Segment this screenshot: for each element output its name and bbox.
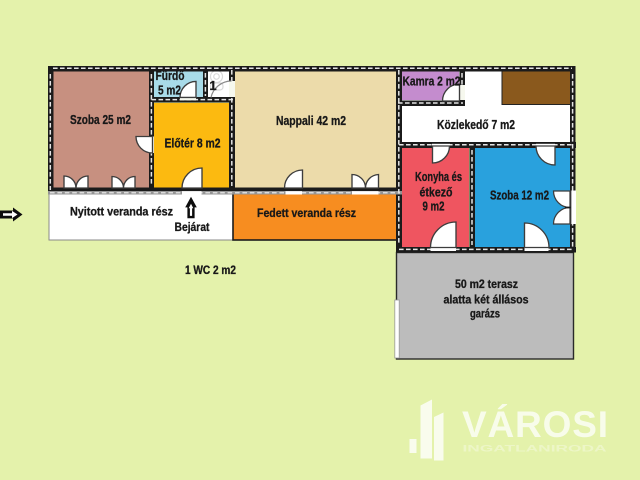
svg-text:9 m2: 9 m2 bbox=[423, 199, 445, 214]
svg-text:Kamra 2 m2: Kamra 2 m2 bbox=[403, 74, 461, 89]
svg-text:Szoba 25 m2: Szoba 25 m2 bbox=[70, 112, 131, 127]
svg-text:Bejárat: Bejárat bbox=[175, 222, 210, 234]
svg-text:50 m2 terasz: 50 m2 terasz bbox=[455, 279, 518, 291]
svg-text:Közlekedő 7 m2: Közlekedő 7 m2 bbox=[437, 117, 515, 132]
svg-text:VÁROSI: VÁROSI bbox=[462, 404, 608, 445]
svg-text:INGATLANIRODA: INGATLANIRODA bbox=[463, 444, 608, 454]
svg-text:Nappali 42 m2: Nappali 42 m2 bbox=[276, 113, 346, 128]
svg-text:Szoba 12 m2: Szoba 12 m2 bbox=[490, 188, 549, 203]
svg-text:alatta két állásos: alatta két állásos bbox=[444, 295, 529, 307]
svg-text:garázs: garázs bbox=[470, 309, 500, 321]
svg-text:Konyha és: Konyha és bbox=[415, 169, 462, 184]
svg-text:Fürdő: Fürdő bbox=[156, 68, 185, 83]
svg-text:5 m2: 5 m2 bbox=[158, 83, 181, 98]
svg-text:1: 1 bbox=[209, 78, 216, 93]
svg-text:Fedett veranda rész: Fedett veranda rész bbox=[257, 208, 356, 220]
svg-text:Nyitott veranda rész: Nyitott veranda rész bbox=[70, 207, 173, 219]
svg-text:Előtér 8 m2: Előtér 8 m2 bbox=[165, 136, 221, 151]
svg-text:1 WC 2 m2: 1 WC 2 m2 bbox=[185, 265, 236, 277]
svg-text:étkező: étkező bbox=[420, 185, 453, 200]
